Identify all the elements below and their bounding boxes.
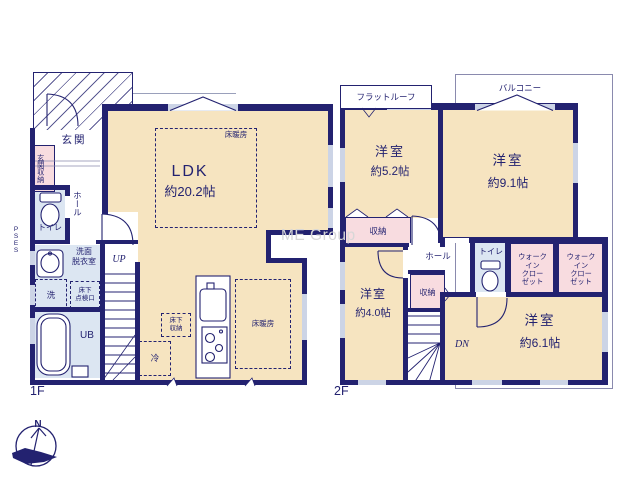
window: [340, 262, 345, 290]
door-arc: [412, 216, 441, 245]
room-label-genkan-storage: 玄関収納: [36, 148, 45, 188]
flat-roof-label: フラットルーフ: [357, 91, 416, 103]
ldk-floor: [138, 230, 268, 262]
stairs-treads: [102, 274, 135, 373]
room-label-52: 洋室: [355, 144, 425, 160]
window: [472, 380, 502, 385]
room-label-ldk: LDK: [155, 162, 225, 182]
underfloor-hatch-label: 床下 点検口: [75, 287, 95, 302]
fridge-space: 冷: [139, 341, 171, 376]
fridge-label: 冷: [151, 353, 160, 363]
walk-in-closet: ウォーク イン クロー ゼット: [558, 243, 604, 297]
floor-label-2f: 2F: [334, 384, 360, 399]
wall: [405, 270, 445, 274]
window: [168, 104, 238, 111]
underfloor-hatch: 床下 点検口: [70, 281, 100, 309]
door-opening: [409, 243, 440, 247]
door-opening: [70, 240, 96, 244]
wall: [440, 292, 608, 297]
compass-north-label: N: [31, 419, 45, 431]
west-room-52-floor: [345, 110, 438, 218]
floor-heating-area: 床暖房: [235, 279, 291, 369]
wall: [266, 258, 307, 263]
door-opening: [476, 292, 506, 297]
room-size-40: 約4.0帖: [336, 307, 410, 320]
window: [602, 312, 608, 352]
door-opening: [403, 250, 408, 278]
window: [328, 145, 333, 187]
room-label-toilet-2f: トイレ: [473, 247, 509, 257]
wall: [30, 307, 102, 312]
floor-heating-label: 床暖房: [218, 130, 254, 139]
stairs-winder-lines: [408, 343, 440, 383]
window: [475, 104, 555, 110]
room-label-hall-1f: ホール: [72, 183, 82, 225]
underfloor-storage: 床下 収納: [161, 313, 191, 337]
room-size-52: 約5.2帖: [348, 165, 432, 179]
room-size-ldk: 約20.2帖: [145, 184, 235, 200]
window: [358, 380, 386, 385]
window: [573, 143, 578, 183]
flat-roof-tag: フラットルーフ: [340, 85, 432, 109]
compass-circle: [16, 426, 56, 466]
wall: [102, 104, 108, 214]
storage-label: 収納: [369, 225, 386, 237]
window: [30, 251, 35, 265]
floor-label-1f: 1F: [30, 384, 56, 399]
window: [30, 318, 35, 344]
door-opening: [445, 238, 469, 243]
floor-plan-canvas: 床暖房 床暖房 洗 床下 点検口 冷 床下 収納 収納 収納: [0, 0, 640, 480]
stairs-treads: [408, 316, 440, 343]
walk-in-closet-label: ウォーク イン クロー ゼット: [518, 253, 547, 287]
door-opening: [65, 196, 70, 218]
room-label-61: 洋室: [498, 313, 582, 329]
underfloor-storage-label: 床下 収納: [170, 317, 183, 332]
room-label-toilet-1f: トイレ: [33, 223, 67, 233]
walk-in-closet: ウォーク イン クロー ゼット: [510, 243, 555, 297]
bathroom-floor: [35, 312, 100, 378]
window: [540, 380, 568, 385]
compass-needle: [31, 428, 39, 465]
walk-in-closet-label: ウォーク イン クロー ゼット: [567, 253, 596, 287]
washer-label: 洗: [47, 290, 56, 300]
wall: [405, 308, 445, 312]
stairs-down-label: DN: [447, 339, 477, 351]
watermark: ME Group: [281, 227, 356, 245]
window: [30, 285, 35, 305]
compass-landmass: [12, 448, 57, 464]
room-size-91: 約9.1帖: [462, 176, 554, 191]
room-label-bath: UB: [72, 330, 102, 342]
balcony-label: バルコニー: [480, 83, 560, 93]
storage-label: 収納: [420, 287, 436, 298]
room-label-40: 洋室: [340, 287, 406, 302]
window: [328, 208, 333, 228]
stairs-up-label: UP: [104, 254, 134, 266]
wall: [30, 380, 307, 385]
room-label-91: 洋室: [468, 153, 548, 169]
room-label-genkan: 玄関: [52, 134, 96, 147]
window: [302, 294, 307, 340]
room-size-61: 約6.1帖: [494, 336, 586, 351]
room-label-hall-2f: ホール: [415, 251, 461, 261]
stairs-break-line: [103, 335, 135, 380]
pipe-space-label: P S E S: [10, 226, 22, 255]
wall: [438, 105, 443, 245]
wall: [135, 262, 140, 382]
room-label-washroom: 洗面 脱衣室: [66, 247, 102, 267]
wall: [553, 240, 558, 295]
west-room-91-floor: [443, 110, 573, 238]
floor-heating-label: 床暖房: [252, 320, 275, 329]
window: [340, 148, 345, 182]
